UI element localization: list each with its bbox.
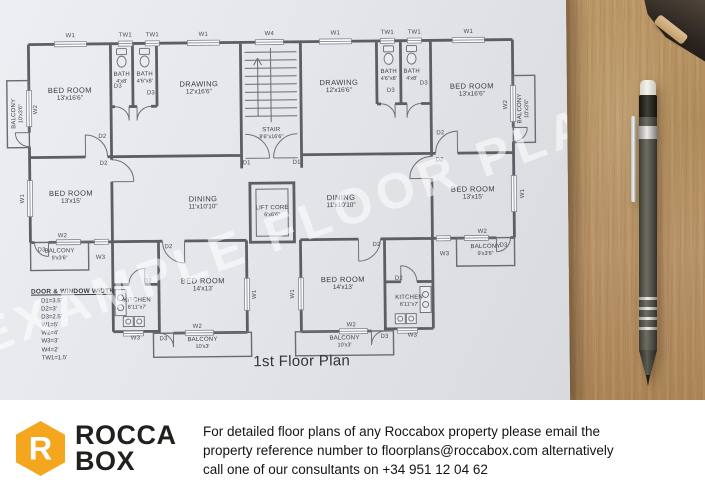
room-label: BATH4'6"x8'	[380, 69, 397, 83]
pencil-grip-ring	[639, 307, 657, 310]
room-label: BED ROOM13'x15'	[451, 184, 495, 201]
logo-hexagon-icon: R	[13, 420, 68, 477]
wall-mark: D3	[387, 88, 395, 94]
wall-mark: D2	[372, 242, 380, 248]
wall-mark: D2	[144, 278, 152, 284]
pencil-grip-ring	[639, 327, 657, 330]
wall-mark: D3	[499, 243, 507, 249]
wall-mark: W1	[520, 189, 526, 198]
wall-mark: D2	[164, 244, 172, 250]
floor-plan: BED ROOM13'x16'6"BATH4'x8'BATH4'6"x8'DRA…	[0, 0, 562, 403]
wall-mark: W3	[440, 251, 449, 257]
svg-text:R: R	[29, 430, 52, 466]
room-label: KITCHEN6'11"x7'	[123, 297, 151, 311]
room-label: BALCONY10'x3'	[329, 335, 359, 349]
pencil-grip-ring	[639, 297, 657, 300]
room-label: DINING11'x10'10"	[188, 194, 217, 211]
pencil-tip-cone	[639, 350, 657, 376]
wall-mark: W1	[290, 289, 296, 298]
toilet-icons	[116, 46, 416, 68]
wall-mark: D3	[37, 247, 45, 253]
room-label: LIFT CORE6'x6'6"	[256, 205, 289, 219]
legend-item: TW1=1.5'	[32, 353, 115, 362]
wall-mark: D3	[420, 80, 428, 86]
wall-mark: D3	[147, 90, 155, 96]
room-label: BED ROOM13'x15'	[49, 189, 93, 206]
room-label: BALCONY10'x3'	[187, 337, 217, 351]
contact-line1: For detailed floor plans of any Roccabox…	[203, 422, 614, 441]
pencil-band	[638, 126, 658, 139]
legend: DOOR & WINDOW WIDTH D1=3.5'D2=3'D3=2.5'W…	[31, 288, 115, 363]
room-label: BALCONY9'x3'6"	[44, 248, 74, 262]
pencil-body	[639, 117, 657, 351]
wall-mark: D2	[100, 161, 108, 167]
screenshot-stage: BED ROOM13'x16'6"BATH4'x8'BATH4'6"x8'DRA…	[0, 0, 705, 498]
room-label: KITCHEN6'11"x7'	[395, 295, 423, 309]
wall-mark: W1	[331, 30, 340, 36]
room-label: BALCONY10'x3'6"	[517, 93, 531, 123]
wall-mark: D2	[395, 276, 403, 282]
wall-mark: W1	[199, 32, 208, 38]
wall-mark: D1	[243, 160, 251, 166]
legend-title: DOOR & WINDOW WIDTH	[31, 288, 114, 296]
mechanical-pencil	[637, 80, 659, 386]
room-label: BALCONY10'x3'6"	[11, 99, 25, 129]
room-label: BATH4'6"x8'	[136, 71, 153, 85]
wall-mark: W2	[503, 100, 509, 109]
brand-line1: ROCCA	[75, 423, 177, 449]
room-label: BED ROOM14'x13'	[181, 276, 225, 293]
wall-mark: D1	[293, 160, 301, 166]
pencil-clip	[631, 116, 636, 202]
room-label: DINING11'x10'10"	[326, 193, 355, 210]
wall-mark: W2	[33, 105, 39, 114]
brand-wordmark: ROCCA BOX	[75, 423, 177, 474]
footer: R ROCCA BOX For detailed floor plans of …	[0, 400, 705, 498]
room-label: BED ROOM13'x16'6"	[48, 86, 92, 103]
wall-mark: W3	[96, 255, 105, 261]
room-label: DRAWING12'x16'6"	[319, 78, 358, 95]
wall-mark: D2	[98, 134, 106, 140]
contact-line2: property reference number to floorplans@…	[203, 441, 614, 460]
pencil-grip-ring	[639, 317, 657, 320]
contact-text: For detailed floor plans of any Roccabox…	[203, 422, 614, 479]
wall-mark: W2	[347, 322, 356, 328]
wall-mark: TW1	[408, 29, 421, 35]
wall-mark: W2	[193, 324, 202, 330]
legend-items: D1=3.5'D2=3'D3=2.5'W1=5'W2=4'W3=3'W4=2'T…	[31, 297, 115, 363]
plan-title: 1st Floor Plan	[253, 352, 350, 370]
pencil-ferrule	[639, 95, 657, 119]
wall-mark: W4	[265, 31, 274, 37]
roccabox-logo: R ROCCA BOX	[13, 420, 177, 477]
wall-mark: W1	[252, 290, 258, 299]
wall-mark: TW1	[381, 30, 394, 36]
wall-mark: D3	[380, 334, 388, 340]
wall-mark: D3	[159, 336, 167, 342]
contact-line3: call one of our consultants on +34 951 1…	[203, 460, 614, 479]
wall-mark: W2	[478, 229, 487, 235]
wall-mark: D3	[114, 84, 122, 90]
wall-mark: W1	[20, 194, 26, 203]
room-label: BATH4'x8'	[403, 69, 420, 83]
wall-mark: W1	[464, 29, 473, 35]
wall-mark: D2	[436, 130, 444, 136]
wall-mark: W1	[66, 33, 75, 39]
wall-mark: W2	[58, 233, 67, 239]
wall-mark: D2	[436, 157, 444, 163]
room-label: STAIR8'6"x16'6"	[259, 127, 283, 141]
brand-line2: BOX	[75, 449, 177, 475]
room-label: DRAWING12'x16'6"	[179, 79, 218, 96]
wall-mark: W3	[131, 335, 140, 341]
wall-mark: W3	[408, 333, 417, 339]
room-label: BALCONY9'x3'6"	[470, 244, 500, 258]
wall-mark: TW1	[146, 32, 159, 38]
floor-plan-paper: BED ROOM13'x16'6"BATH4'x8'BATH4'6"x8'DRA…	[0, 0, 570, 411]
room-label: BED ROOM14'x13'	[321, 275, 365, 292]
wall-mark: TW1	[119, 33, 132, 39]
pencil-lead	[646, 375, 650, 386]
room-label: BED ROOM13'x16'6"	[450, 81, 494, 98]
